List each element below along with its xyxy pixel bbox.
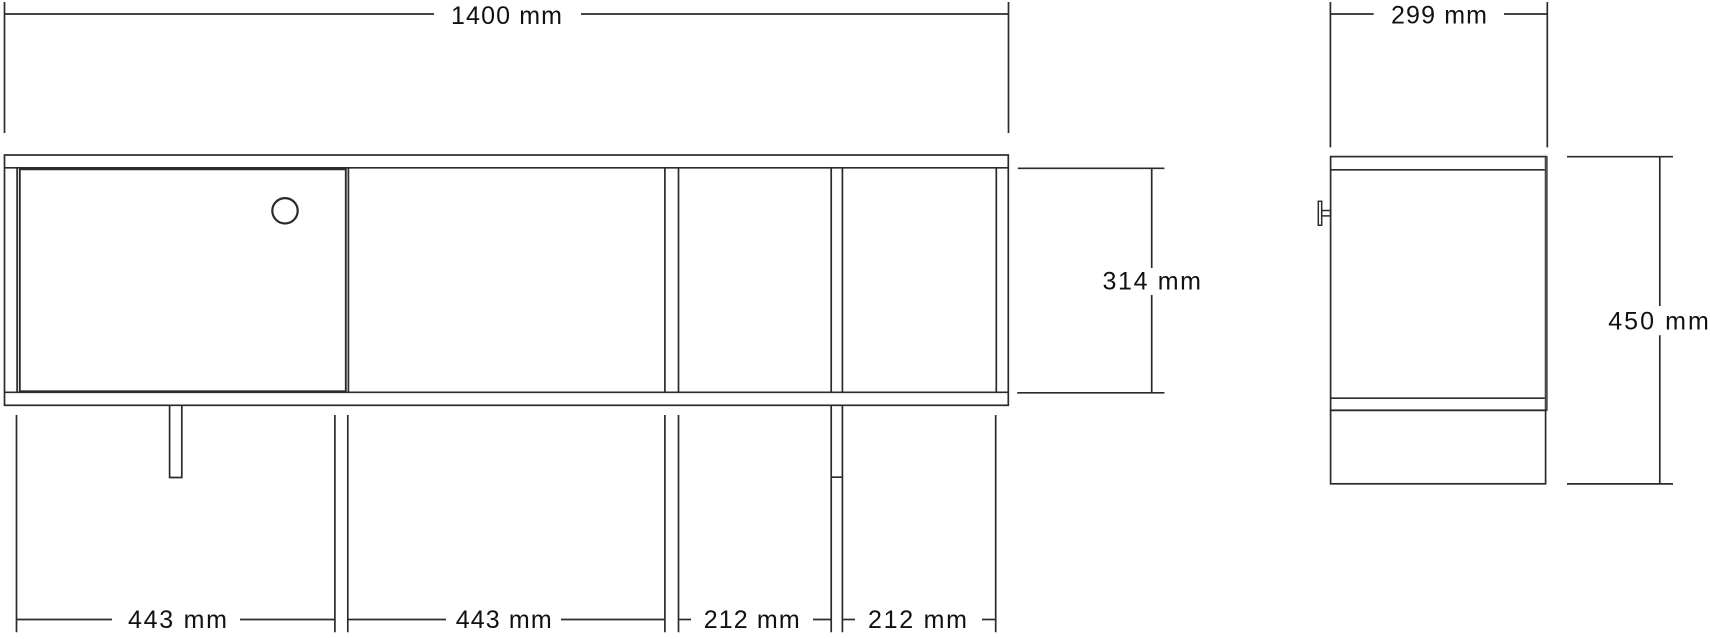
svg-text:212 mm: 212 mm [868,606,967,634]
svg-text:1400 mm: 1400 mm [451,2,562,30]
svg-text:443 mm: 443 mm [128,606,227,634]
svg-text:299 mm: 299 mm [1391,1,1487,29]
svg-text:212 mm: 212 mm [704,606,800,634]
svg-text:314 mm: 314 mm [1103,268,1202,296]
svg-text:450 mm: 450 mm [1608,307,1709,335]
svg-text:443 mm: 443 mm [456,606,552,634]
